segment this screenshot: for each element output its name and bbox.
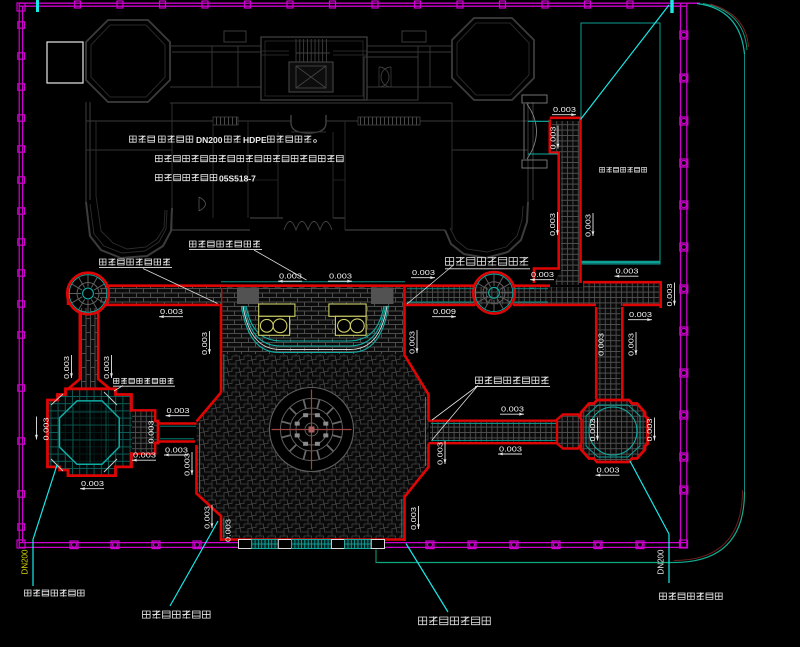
svg-text:0.009: 0.009 [433,307,456,316]
svg-text:0.003: 0.003 [629,310,652,319]
svg-text:0.003: 0.003 [627,333,636,356]
svg-text:0.003: 0.003 [160,307,183,316]
svg-text:0.003: 0.003 [548,213,557,236]
svg-text:0.003: 0.003 [588,419,597,442]
svg-text:0.003: 0.003 [549,127,558,150]
svg-text:0.003: 0.003 [167,406,190,415]
svg-text:0.003: 0.003 [200,332,209,355]
svg-text:0.003: 0.003 [665,284,674,307]
svg-text:DN200: DN200 [657,549,666,574]
svg-text:0.003: 0.003 [224,519,233,542]
svg-text:0.003: 0.003 [499,444,522,453]
svg-text:0.003: 0.003 [597,466,620,475]
svg-text:0.003: 0.003 [279,272,302,281]
svg-text:0.003: 0.003 [203,506,212,529]
svg-text:0.003: 0.003 [553,105,576,114]
svg-text:0.003: 0.003 [412,268,435,277]
svg-text:0.003: 0.003 [183,453,192,476]
svg-text:0.003: 0.003 [102,356,111,379]
svg-text:0.003: 0.003 [62,356,71,379]
svg-text:HDPE: HDPE [243,135,267,145]
svg-text:0.003: 0.003 [531,270,554,279]
svg-text:0.003: 0.003 [616,267,639,276]
svg-text:0.003: 0.003 [42,418,51,441]
svg-text:0.003: 0.003 [329,272,352,281]
svg-text:0.003: 0.003 [147,421,156,444]
svg-text:0.003: 0.003 [597,333,606,356]
svg-text:DN200: DN200 [196,135,223,145]
svg-text:0.003: 0.003 [436,442,445,465]
svg-text:DN200: DN200 [21,549,30,574]
svg-text:0.003: 0.003 [81,479,104,488]
svg-text:0.003: 0.003 [409,507,418,530]
svg-text:05S518-7: 05S518-7 [219,174,256,184]
svg-text:0.003: 0.003 [408,331,417,354]
svg-text:0.003: 0.003 [133,451,156,460]
svg-text:0.003: 0.003 [501,405,524,414]
svg-text:0.003: 0.003 [645,419,654,442]
svg-text:0.003: 0.003 [584,214,593,237]
